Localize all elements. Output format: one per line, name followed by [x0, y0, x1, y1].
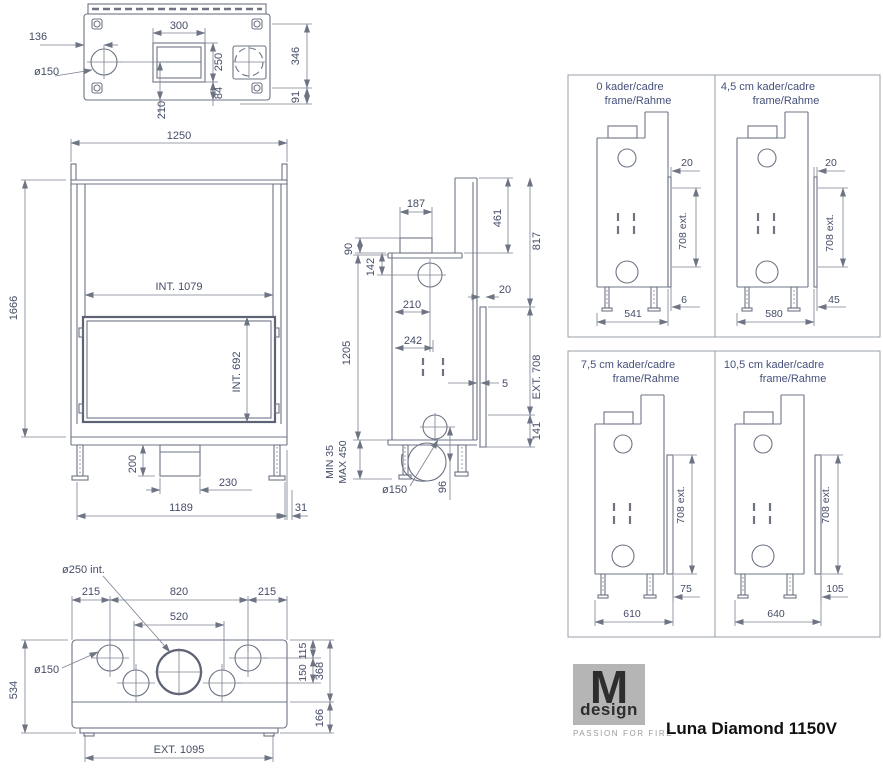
variant-title: 4,5 cm kader/cadre: [721, 81, 815, 93]
dim-ext708-side: EXT. 708: [531, 355, 543, 400]
dim-150: 150: [297, 664, 309, 682]
bottom-view-linework: [21, 576, 334, 762]
dim-int1079: INT. 1079: [155, 281, 202, 293]
dim-5: 5: [502, 378, 508, 390]
dim-210-top: 210: [156, 101, 168, 119]
drawing-svg: 136 ø150 300 250 84 346 91 210: [0, 0, 883, 768]
side-view-dims: 187 90 142 461 817 20 210 242 1205 5 EXT…: [324, 198, 543, 496]
dim-dia150-side: ø150: [382, 484, 407, 496]
product-model: Luna Diamond 1150V: [666, 719, 837, 739]
variant-title: 10,5 cm kader/cadre: [724, 359, 824, 371]
dim-20-side: 20: [499, 284, 511, 296]
variant-base-dim: 640: [767, 608, 785, 620]
variant-gap-dim: 20: [825, 157, 837, 169]
dim-534: 534: [8, 681, 20, 699]
dim-max450: MAX 450: [337, 440, 349, 483]
dim-91: 91: [290, 91, 302, 103]
dim-136: 136: [29, 31, 47, 43]
front-view-dims: 1250 1666 INT. 1079 INT. 692 200 230 118…: [8, 130, 307, 514]
variant-subtitle: frame/Rahme: [605, 95, 672, 107]
dim-ext1095: EXT. 1095: [154, 744, 205, 756]
dim-90: 90: [343, 243, 355, 255]
variant-title: 7,5 cm kader/cadre: [581, 359, 675, 371]
variant-offset-dim: 45: [828, 294, 840, 306]
dim-200: 200: [127, 455, 139, 473]
dim-461: 461: [492, 209, 504, 227]
dim-int692: INT. 692: [231, 352, 243, 393]
dim-142: 142: [365, 258, 377, 276]
variant-title: 0 kader/cadre: [596, 81, 663, 93]
dim-84: 84: [213, 87, 225, 99]
dim-242: 242: [404, 335, 422, 347]
mdesign-logo: M design: [573, 664, 645, 725]
dim-1250: 1250: [167, 130, 191, 142]
dim-31: 31: [295, 502, 307, 514]
variant-ext-dim: 708 ext.: [820, 486, 832, 523]
dim-520: 520: [170, 611, 188, 623]
variant-ext-dim: 708 ext.: [677, 212, 689, 249]
dim-min35: MIN 35: [324, 445, 336, 479]
dim-215-left: 215: [82, 586, 100, 598]
variant-base-dim: 610: [623, 608, 641, 620]
variant-gap-dim: 20: [681, 157, 693, 169]
dim-dia150-bottom: ø150: [34, 664, 59, 676]
dim-300: 300: [170, 20, 188, 32]
dim-187: 187: [407, 198, 425, 210]
dim-1666: 1666: [8, 296, 20, 320]
front-view-linework: [21, 139, 308, 520]
variant-subtitle: frame/Rahme: [753, 95, 820, 107]
variant-offset-dim: 105: [826, 583, 844, 595]
dim-210-side: 210: [403, 299, 421, 311]
dim-1205: 1205: [341, 341, 353, 365]
dim-dia150-top: ø150: [34, 66, 59, 78]
dim-115: 115: [297, 642, 309, 659]
dim-817: 817: [531, 232, 543, 250]
variant-base-dim: 541: [624, 308, 642, 320]
dim-368: 368: [314, 662, 326, 680]
dim-1189: 1189: [169, 502, 193, 514]
dim-346: 346: [290, 47, 302, 65]
variant-subtitle: frame/Rahme: [760, 373, 827, 385]
variant-base-dim: 580: [765, 308, 783, 320]
variant-offset-dim: 6: [681, 294, 687, 306]
dim-166: 166: [314, 709, 326, 727]
variant-subtitle: frame/Rahme: [613, 373, 680, 385]
variant-ext-dim: 708 ext.: [824, 214, 836, 251]
dim-250: 250: [213, 53, 225, 71]
dim-230: 230: [219, 477, 237, 489]
logo-tagline: PASSION FOR FIRE: [573, 729, 673, 738]
dim-215-right: 215: [258, 586, 276, 598]
bottom-view-dims: ø250 int. 215 820 215 520 ø150 534 115 1…: [8, 564, 326, 756]
variant-ext-dim: 708 ext.: [675, 486, 687, 523]
logo-wordmark: design: [573, 700, 645, 720]
side-view-linework: [353, 178, 535, 500]
technical-drawing-sheet: 136 ø150 300 250 84 346 91 210: [0, 0, 883, 768]
dim-96: 96: [437, 481, 449, 493]
dim-141: 141: [531, 422, 543, 440]
dim-820: 820: [170, 586, 188, 598]
variant-offset-dim: 75: [680, 583, 692, 595]
dim-dia250: ø250 int.: [62, 564, 105, 576]
